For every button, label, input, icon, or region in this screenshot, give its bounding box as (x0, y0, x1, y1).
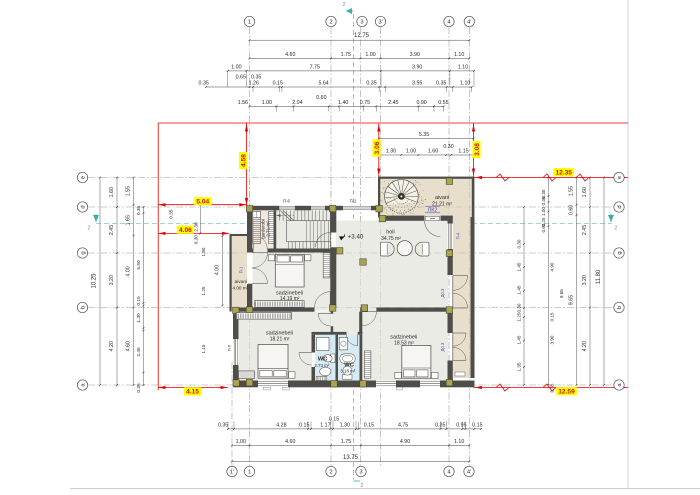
svg-text:3.90: 3.90 (410, 52, 420, 58)
svg-text:2.45: 2.45 (388, 100, 398, 106)
svg-text:П-2: П-2 (350, 198, 357, 203)
svg-text:sadzinebeli: sadzinebeli (390, 335, 417, 341)
svg-text:1.25: 1.25 (201, 286, 206, 295)
svg-text:1.75: 1.75 (341, 52, 351, 58)
svg-text:1.45: 1.45 (517, 285, 522, 294)
svg-text:1.00: 1.00 (262, 100, 272, 106)
svg-text:1.25: 1.25 (517, 312, 522, 321)
svg-text:1.60: 1.60 (428, 149, 438, 155)
svg-text:1.00: 1.00 (231, 65, 241, 71)
svg-text:1.26: 1.26 (249, 81, 259, 87)
svg-text:1.17: 1.17 (320, 422, 330, 428)
svg-text:0.35: 0.35 (218, 422, 228, 428)
svg-text:4.06: 4.06 (179, 227, 192, 234)
svg-text:1.00: 1.00 (406, 149, 416, 155)
svg-text:1.80: 1.80 (201, 247, 206, 256)
svg-text:11.80: 11.80 (596, 269, 602, 284)
svg-text:1.55: 1.55 (569, 186, 575, 196)
svg-text:1: 1 (248, 470, 251, 476)
svg-text:9.65: 9.65 (569, 295, 575, 305)
svg-text:1.35: 1.35 (517, 362, 522, 371)
svg-text:12.75: 12.75 (354, 33, 370, 39)
svg-text:4.20: 4.20 (109, 341, 115, 351)
svg-text:0.55: 0.55 (438, 100, 448, 106)
svg-text:4.58: 4.58 (240, 154, 247, 167)
svg-text:4′: 4′ (467, 20, 471, 26)
svg-text:П-4: П-4 (456, 232, 461, 239)
svg-text:12.35: 12.35 (555, 170, 572, 177)
svg-text:0.35: 0.35 (436, 81, 446, 87)
svg-text:+3.40: +3.40 (348, 233, 364, 240)
svg-text:4.60: 4.60 (285, 439, 295, 445)
svg-text:1.00: 1.00 (236, 439, 246, 445)
svg-text:1.40: 1.40 (338, 100, 348, 106)
svg-text:1.30: 1.30 (386, 149, 396, 155)
svg-text:3.90: 3.90 (550, 335, 555, 344)
svg-text:4′: 4′ (467, 470, 471, 476)
svg-text:d: d (617, 205, 623, 208)
svg-text:1.10: 1.10 (458, 65, 468, 71)
svg-text:Д0.3: Д0.3 (440, 288, 445, 297)
svg-text:1.00: 1.00 (365, 52, 375, 58)
svg-text:0.35: 0.35 (199, 81, 209, 87)
svg-text:e: e (80, 176, 86, 179)
svg-text:4.75: 4.75 (398, 422, 408, 428)
svg-text:18.53 m²: 18.53 m² (394, 341, 414, 347)
svg-text:0.30: 0.30 (193, 235, 199, 245)
svg-text:5.04: 5.04 (196, 199, 209, 206)
svg-text:3: 3 (360, 20, 363, 26)
svg-text:1.10: 1.10 (454, 439, 464, 445)
svg-text:4.00: 4.00 (126, 266, 132, 276)
svg-text:П-1: П-1 (238, 266, 243, 273)
svg-text:1.45: 1.45 (517, 262, 522, 271)
svg-text:14.19 m²: 14.19 m² (280, 296, 300, 302)
svg-text:sadzinebeli: sadzinebeli (266, 330, 293, 336)
svg-text:1.60: 1.60 (582, 187, 588, 197)
svg-text:2.38: 2.38 (193, 222, 199, 232)
svg-text:3.55: 3.55 (412, 81, 422, 87)
svg-text:1′: 1′ (230, 470, 234, 476)
svg-text:1.30: 1.30 (136, 313, 142, 323)
svg-text:b: b (617, 306, 623, 309)
svg-text:2: 2 (329, 470, 332, 476)
svg-text:7.75: 7.75 (310, 65, 320, 71)
svg-text:g: g (617, 251, 623, 254)
svg-text:10.25: 10.25 (92, 273, 98, 289)
svg-text:0.30: 0.30 (517, 303, 522, 312)
svg-text:0.15: 0.15 (472, 422, 482, 428)
svg-text:18.21 m²: 18.21 m² (270, 337, 290, 343)
svg-text:aivani: aivani (235, 279, 248, 285)
svg-text:5.50: 5.50 (136, 260, 142, 270)
svg-text:2.45: 2.45 (109, 225, 115, 235)
svg-text:0.35: 0.35 (251, 74, 261, 80)
svg-text:WC: WC (318, 356, 328, 362)
svg-text:2.73 m²: 2.73 m² (314, 363, 329, 368)
svg-text:9.65: 9.65 (559, 289, 564, 298)
svg-text:4.15: 4.15 (186, 389, 199, 396)
svg-text:1.45: 1.45 (517, 335, 522, 344)
svg-text:13.75: 13.75 (343, 455, 359, 461)
svg-text:1.10: 1.10 (454, 52, 464, 58)
svg-text:1.00: 1.00 (541, 207, 546, 216)
svg-text:1.60: 1.60 (109, 187, 115, 197)
svg-text:4.90: 4.90 (400, 439, 410, 445)
svg-text:3.06: 3.06 (374, 141, 381, 154)
svg-text:2: 2 (615, 226, 618, 232)
svg-text:1.56: 1.56 (238, 100, 248, 106)
svg-text:П-6: П-6 (283, 198, 290, 203)
svg-text:1.65: 1.65 (126, 215, 132, 225)
svg-text:1.30: 1.30 (340, 422, 350, 428)
svg-text:0.35: 0.35 (169, 209, 175, 219)
svg-text:5.64: 5.64 (318, 81, 328, 87)
svg-text:12.59: 12.59 (558, 389, 575, 396)
svg-text:2.45: 2.45 (582, 225, 588, 235)
svg-text:1.15: 1.15 (201, 344, 206, 353)
svg-text:34.75 m²: 34.75 m² (381, 236, 401, 242)
svg-text:1.55: 1.55 (126, 186, 132, 196)
svg-text:0.15: 0.15 (136, 296, 142, 306)
svg-text:4.90: 4.90 (550, 262, 555, 271)
svg-text:0.15: 0.15 (364, 422, 374, 428)
svg-text:2: 2 (343, 2, 346, 8)
svg-text:0.60: 0.60 (569, 205, 575, 215)
svg-text:3.20: 3.20 (109, 275, 115, 285)
svg-text:3.90: 3.90 (412, 65, 422, 71)
svg-text:4.20: 4.20 (582, 341, 588, 351)
svg-text:1: 1 (248, 20, 251, 26)
svg-text:0.30: 0.30 (517, 239, 522, 248)
svg-text:4.60: 4.60 (285, 52, 295, 58)
svg-text:П-5: П-5 (227, 344, 232, 351)
svg-text:0.35: 0.35 (136, 383, 142, 393)
svg-text:0.35: 0.35 (541, 196, 546, 205)
svg-text:0.65: 0.65 (236, 74, 246, 80)
svg-text:2.45: 2.45 (136, 347, 142, 357)
svg-text:d: d (80, 205, 86, 208)
svg-text:g: g (80, 251, 86, 254)
svg-text:ЛК2: ЛК2 (428, 207, 438, 213)
svg-text:0.30: 0.30 (443, 144, 453, 150)
svg-text:3.18 m²: 3.18 m² (340, 368, 355, 373)
svg-text:1.75: 1.75 (341, 439, 351, 445)
svg-text:0.75: 0.75 (360, 100, 370, 106)
svg-text:2.04: 2.04 (292, 100, 302, 106)
svg-text:0.35: 0.35 (366, 81, 376, 87)
svg-text:5.35: 5.35 (419, 132, 429, 138)
svg-text:e: e (617, 176, 623, 179)
svg-text:4.00: 4.00 (215, 265, 221, 275)
svg-text:1.10: 1.10 (460, 81, 470, 87)
svg-text:0.35: 0.35 (136, 206, 142, 216)
svg-text:3.20: 3.20 (582, 275, 588, 285)
svg-text:Д0.3: Д0.3 (440, 342, 445, 351)
svg-text:0.60: 0.60 (541, 223, 546, 232)
svg-text:3: 3 (359, 470, 362, 476)
svg-text:4.28: 4.28 (276, 422, 286, 428)
svg-text:1.15: 1.15 (458, 149, 468, 155)
svg-text:2: 2 (361, 483, 364, 489)
svg-text:aivani: aivani (435, 195, 449, 201)
svg-text:2: 2 (329, 20, 332, 26)
svg-text:3.08: 3.08 (474, 143, 481, 156)
svg-text:2.71 m²: 2.71 m² (266, 221, 271, 237)
svg-text:0.15: 0.15 (273, 81, 283, 87)
svg-text:0.90: 0.90 (416, 100, 426, 106)
svg-text:holi: holi (386, 230, 394, 236)
svg-text:garderobi: garderobi (260, 219, 265, 238)
svg-text:0.60: 0.60 (316, 95, 326, 101)
svg-text:b: b (80, 306, 86, 309)
svg-text:4.60: 4.60 (126, 341, 132, 351)
svg-text:2: 2 (88, 226, 91, 232)
svg-text:0.15: 0.15 (550, 312, 555, 321)
svg-text:0.95: 0.95 (456, 422, 466, 428)
svg-text:3′: 3′ (378, 20, 382, 26)
svg-text:4.00 m²: 4.00 m² (233, 285, 249, 290)
